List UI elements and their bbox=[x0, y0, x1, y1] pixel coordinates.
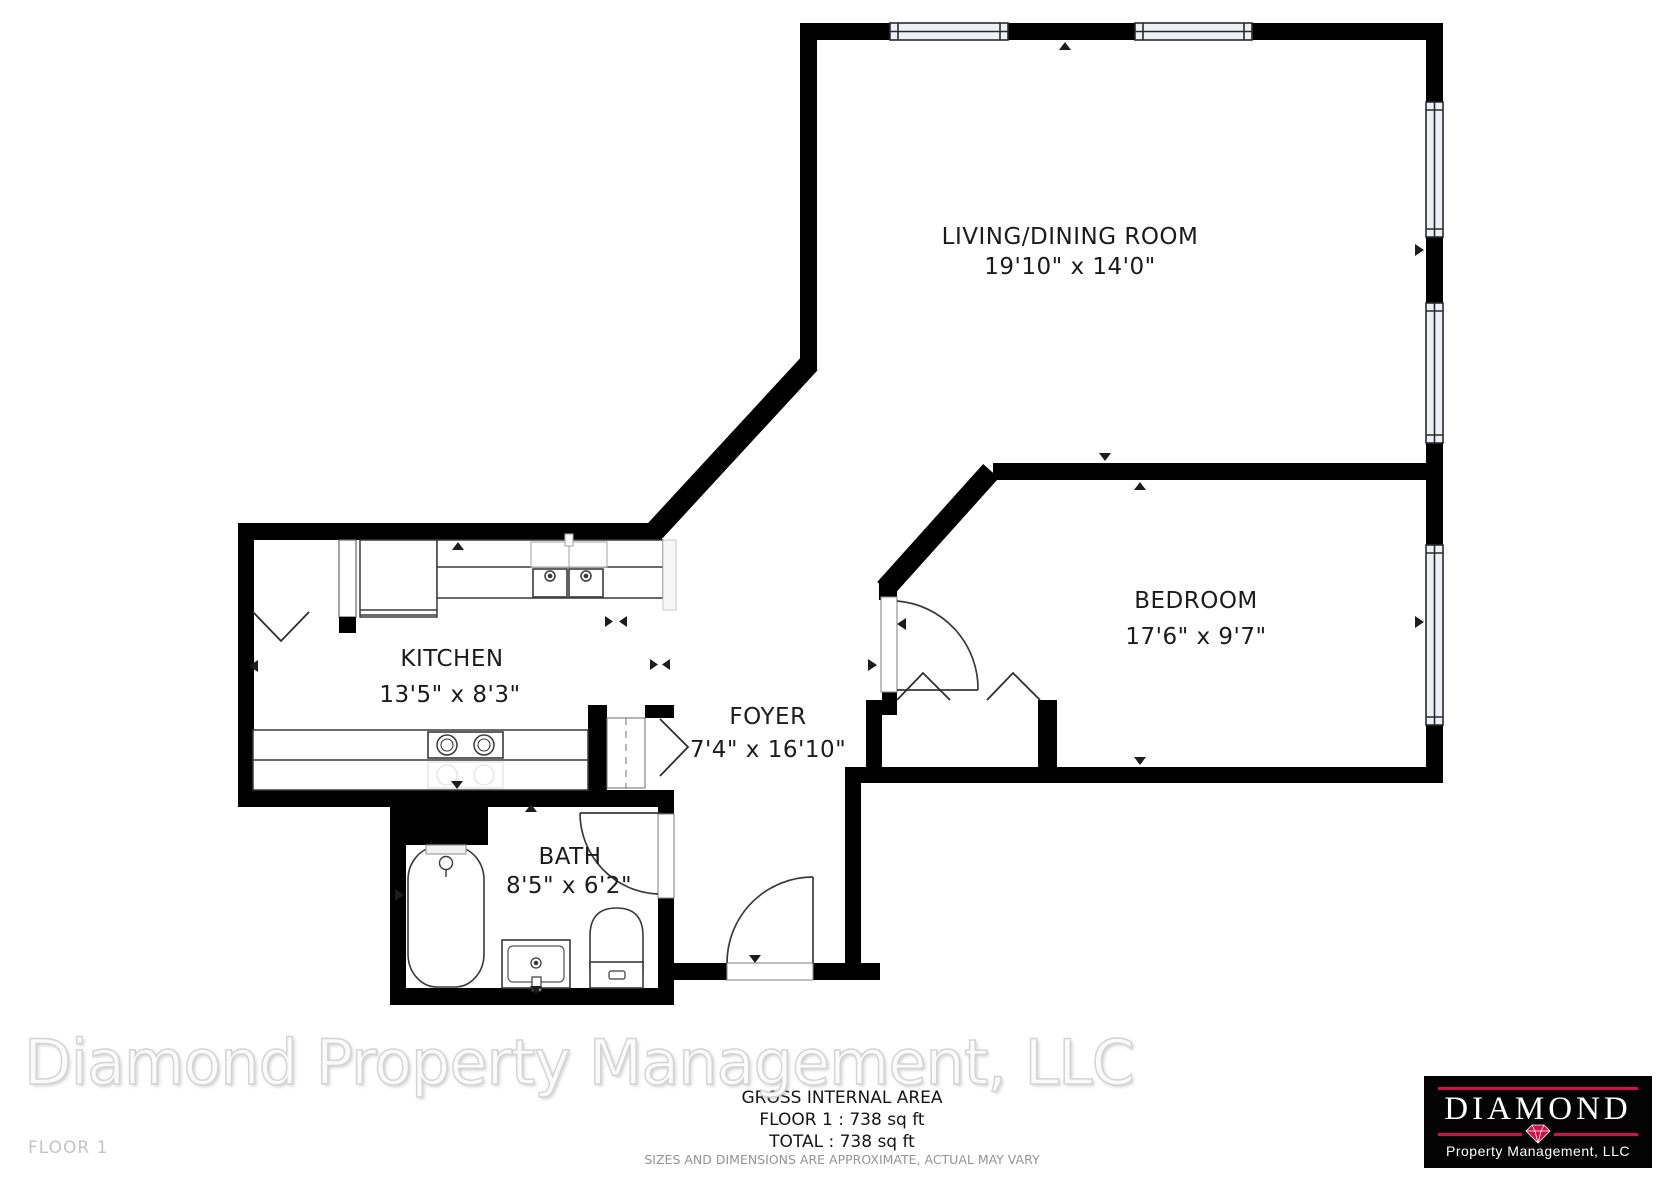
marker-triangle bbox=[605, 616, 613, 627]
marker-triangle bbox=[1415, 616, 1424, 628]
counter-end-panel bbox=[663, 540, 676, 610]
floor-area-line: FLOOR 1 : 738 sq ft bbox=[759, 1110, 925, 1130]
disclaimer-line: SIZES AND DIMENSIONS ARE APPROXIMATE, AC… bbox=[644, 1152, 1040, 1167]
wall-diagonal-foyer-left bbox=[655, 363, 810, 531]
floorplan-page: LIVING/DINING ROOM 19'10" x 14'0" BEDROO… bbox=[0, 0, 1680, 1188]
bathroom-sink bbox=[502, 940, 570, 991]
stove bbox=[428, 732, 503, 758]
bedroom-door-opening bbox=[881, 597, 897, 692]
cased-opening-dashed bbox=[607, 718, 645, 788]
kitchen-sink bbox=[531, 534, 607, 597]
wall-bedroom-bottom bbox=[845, 767, 1443, 783]
area-summary: GROSS INTERNAL AREA FLOOR 1 : 738 sq ft … bbox=[644, 1088, 1040, 1167]
room-label-bedroom: BEDROOM bbox=[1134, 588, 1258, 614]
room-label-kitchen: KITCHEN bbox=[400, 646, 503, 672]
room-label-foyer: FOYER bbox=[729, 704, 806, 730]
logo-rule-left bbox=[1438, 1133, 1522, 1136]
watermark-text: Diamond Property Management, LLC bbox=[24, 1026, 1134, 1099]
wall-closet-left bbox=[866, 700, 882, 775]
entry-door-opening bbox=[727, 963, 813, 980]
wall-bath-left bbox=[390, 805, 406, 1005]
logo-subtitle-text: Property Management, LLC bbox=[1424, 1143, 1652, 1159]
bedroom-door-arc bbox=[897, 601, 978, 690]
window-right-2 bbox=[1426, 303, 1443, 443]
wall-closet-post bbox=[1038, 700, 1057, 775]
bath-fixtures bbox=[408, 845, 643, 991]
wall-bath-right-upper bbox=[658, 790, 674, 815]
toilet bbox=[590, 908, 643, 988]
marker-triangle bbox=[1099, 453, 1111, 461]
wall-kitchen-top bbox=[238, 523, 662, 540]
marker-triangle bbox=[897, 618, 906, 630]
bifold-door-icon bbox=[897, 673, 950, 700]
room-dims-bedroom: 17'6" x 9'7" bbox=[1125, 624, 1266, 650]
wall-entry-left bbox=[658, 963, 728, 980]
window-top-2 bbox=[1135, 23, 1252, 40]
windows bbox=[890, 23, 1443, 725]
logo-rule-top bbox=[1438, 1087, 1638, 1090]
wall-kitchen-bottom bbox=[238, 790, 674, 807]
bifold-door-icon bbox=[253, 612, 309, 641]
bifold-door-icon bbox=[660, 719, 688, 776]
total-area-line: TOTAL : 738 sq ft bbox=[768, 1132, 915, 1152]
window-right-1 bbox=[1426, 102, 1443, 237]
wall-foyer-cap bbox=[645, 705, 674, 718]
bifold-door-icon bbox=[987, 673, 1040, 700]
wall-kitchen-right-stub bbox=[588, 705, 607, 790]
room-label-bath: BATH bbox=[538, 844, 601, 870]
company-logo: DIAMOND Property Management, LLC bbox=[1424, 1076, 1652, 1168]
room-label-living: LIVING/DINING ROOM bbox=[942, 224, 1199, 250]
marker-triangle bbox=[749, 955, 761, 963]
marker-triangle bbox=[662, 659, 670, 670]
bath-door-opening bbox=[658, 814, 674, 898]
room-dims-living: 19'10" x 14'0" bbox=[984, 254, 1155, 280]
diamond-gem-icon bbox=[1524, 1124, 1552, 1144]
wall-diagonal-bedroom bbox=[885, 471, 991, 589]
marker-triangle bbox=[1134, 482, 1146, 490]
bathtub bbox=[408, 845, 484, 987]
marker-triangle bbox=[1059, 42, 1071, 50]
floorplan-svg: LIVING/DINING ROOM 19'10" x 14'0" BEDROO… bbox=[0, 0, 1680, 1188]
marker-triangle bbox=[619, 616, 627, 627]
logo-brand-text: DIAMOND bbox=[1424, 1091, 1652, 1127]
entry-door-arc bbox=[727, 877, 813, 963]
wall-foyer-right bbox=[845, 767, 861, 980]
wall-kitchen-interior-opening bbox=[339, 540, 356, 617]
room-dims-kitchen: 13'5" x 8'3" bbox=[379, 682, 520, 708]
room-dims-foyer: 7'4" x 16'10" bbox=[690, 737, 846, 763]
marker-triangle bbox=[1415, 244, 1424, 256]
wall-kitchen-interior-stub bbox=[339, 617, 356, 633]
wall-living-left bbox=[800, 23, 817, 370]
floor-number-label: FLOOR 1 bbox=[28, 1138, 108, 1158]
refrigerator bbox=[360, 540, 437, 617]
logo-rule-row bbox=[1438, 1127, 1638, 1141]
marker-triangle bbox=[868, 659, 877, 671]
stove-reflection bbox=[428, 762, 503, 788]
marker-triangle bbox=[1134, 757, 1146, 765]
logo-rule-right bbox=[1554, 1133, 1638, 1136]
window-bedroom bbox=[1426, 545, 1443, 725]
window-top-1 bbox=[890, 23, 1008, 40]
room-dims-bath: 8'5" x 6'2" bbox=[506, 873, 632, 899]
wall-bath-right-lower bbox=[658, 898, 674, 1005]
wall-living-bedroom bbox=[993, 463, 1443, 480]
marker-triangle bbox=[650, 659, 658, 670]
